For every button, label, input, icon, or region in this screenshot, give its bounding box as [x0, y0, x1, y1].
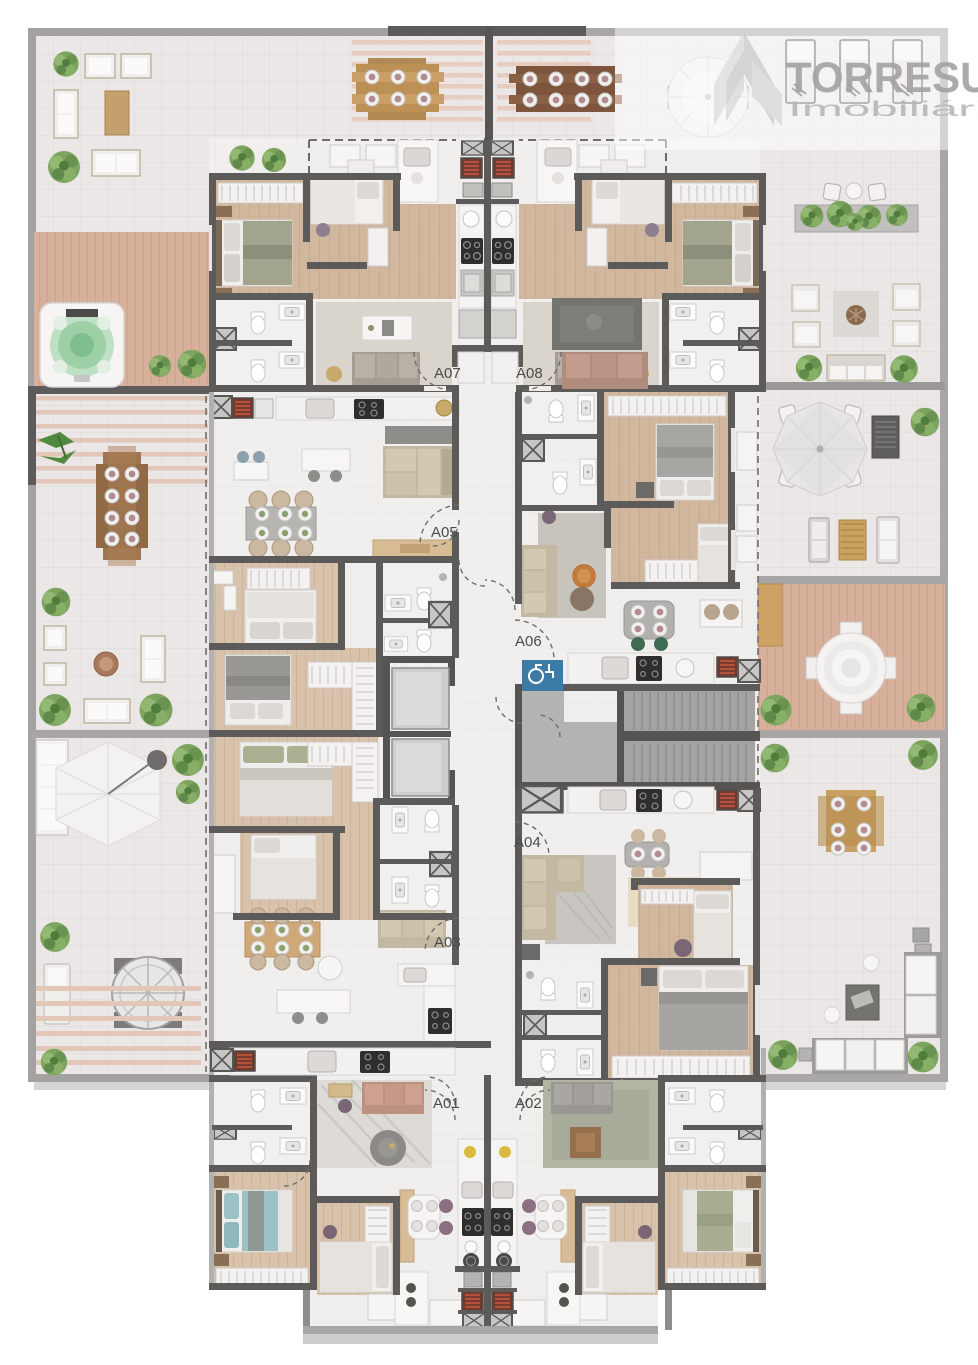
svg-text:TORRESUL: TORRESUL — [786, 54, 978, 102]
svg-text:A08: A08 — [516, 365, 543, 382]
svg-text:A03: A03 — [434, 934, 461, 951]
svg-text:A01: A01 — [433, 1095, 460, 1112]
svg-text:A04: A04 — [514, 834, 541, 851]
svg-text:A05: A05 — [431, 524, 458, 541]
svg-text:A06: A06 — [515, 633, 542, 650]
svg-text:A02: A02 — [515, 1095, 542, 1112]
svg-text:Imobiliária: Imobiliária — [788, 98, 978, 121]
svg-text:A07: A07 — [434, 365, 461, 382]
